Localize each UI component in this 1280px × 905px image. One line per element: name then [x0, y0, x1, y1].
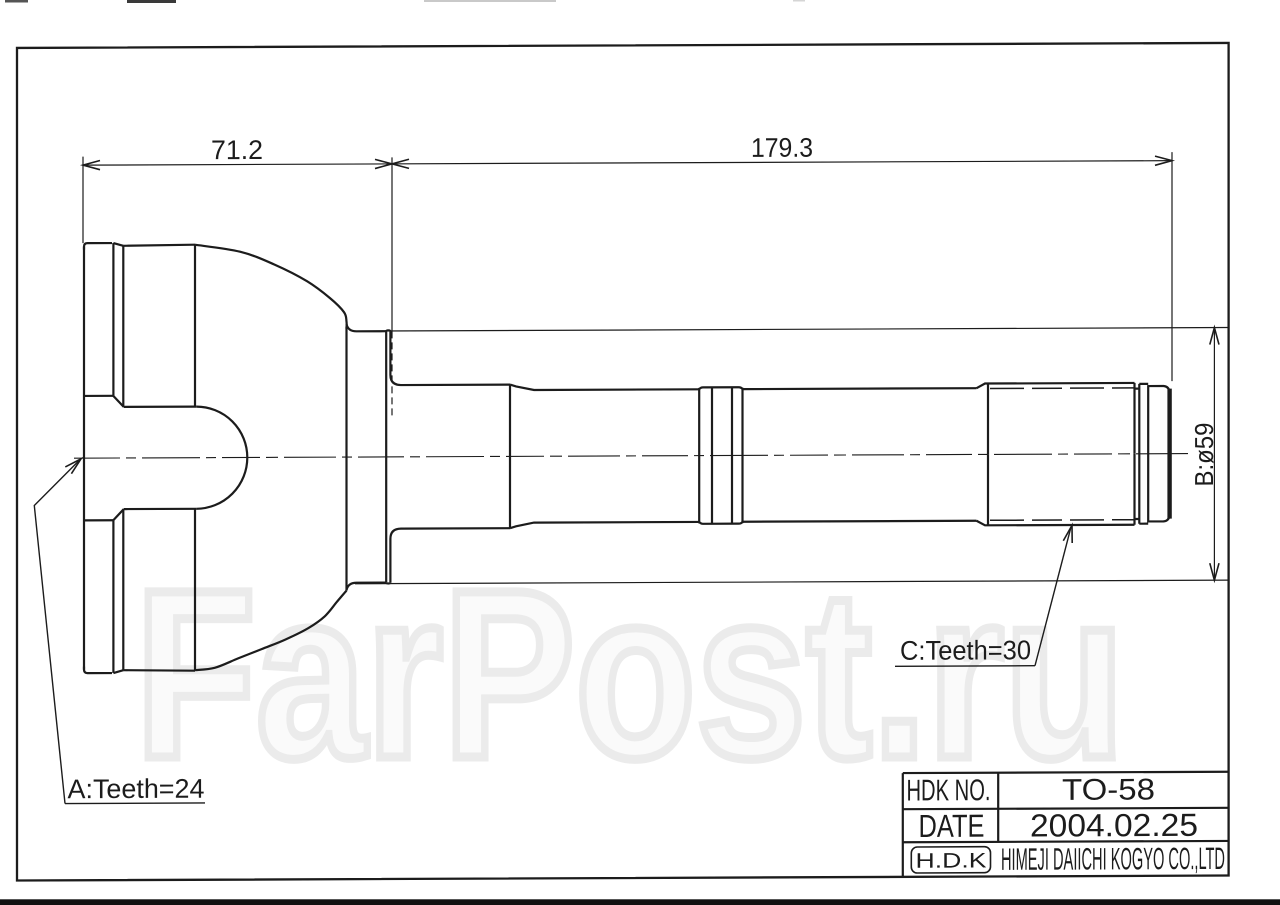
svg-text:H.D.K: H.D.K: [916, 849, 987, 872]
svg-text:179.3: 179.3: [751, 133, 813, 163]
svg-text:A:Teeth=24: A:Teeth=24: [68, 774, 205, 805]
svg-text:HIMEJI DAIICHI KOGYO CO.,LTD: HIMEJI DAIICHI KOGYO CO.,LTD: [1001, 841, 1225, 877]
svg-text:B:ø59: B:ø59: [1189, 422, 1219, 486]
svg-text:C:Teeth=30: C:Teeth=30: [900, 635, 1031, 666]
svg-text:71.2: 71.2: [211, 135, 263, 165]
svg-text:2004.02.25: 2004.02.25: [1030, 807, 1198, 844]
svg-text:DATE: DATE: [919, 808, 985, 844]
svg-text:TO-58: TO-58: [1062, 773, 1155, 806]
svg-text:HDK NO.: HDK NO.: [907, 774, 991, 807]
svg-text:FarPost.ru: FarPost.ru: [135, 540, 1125, 808]
